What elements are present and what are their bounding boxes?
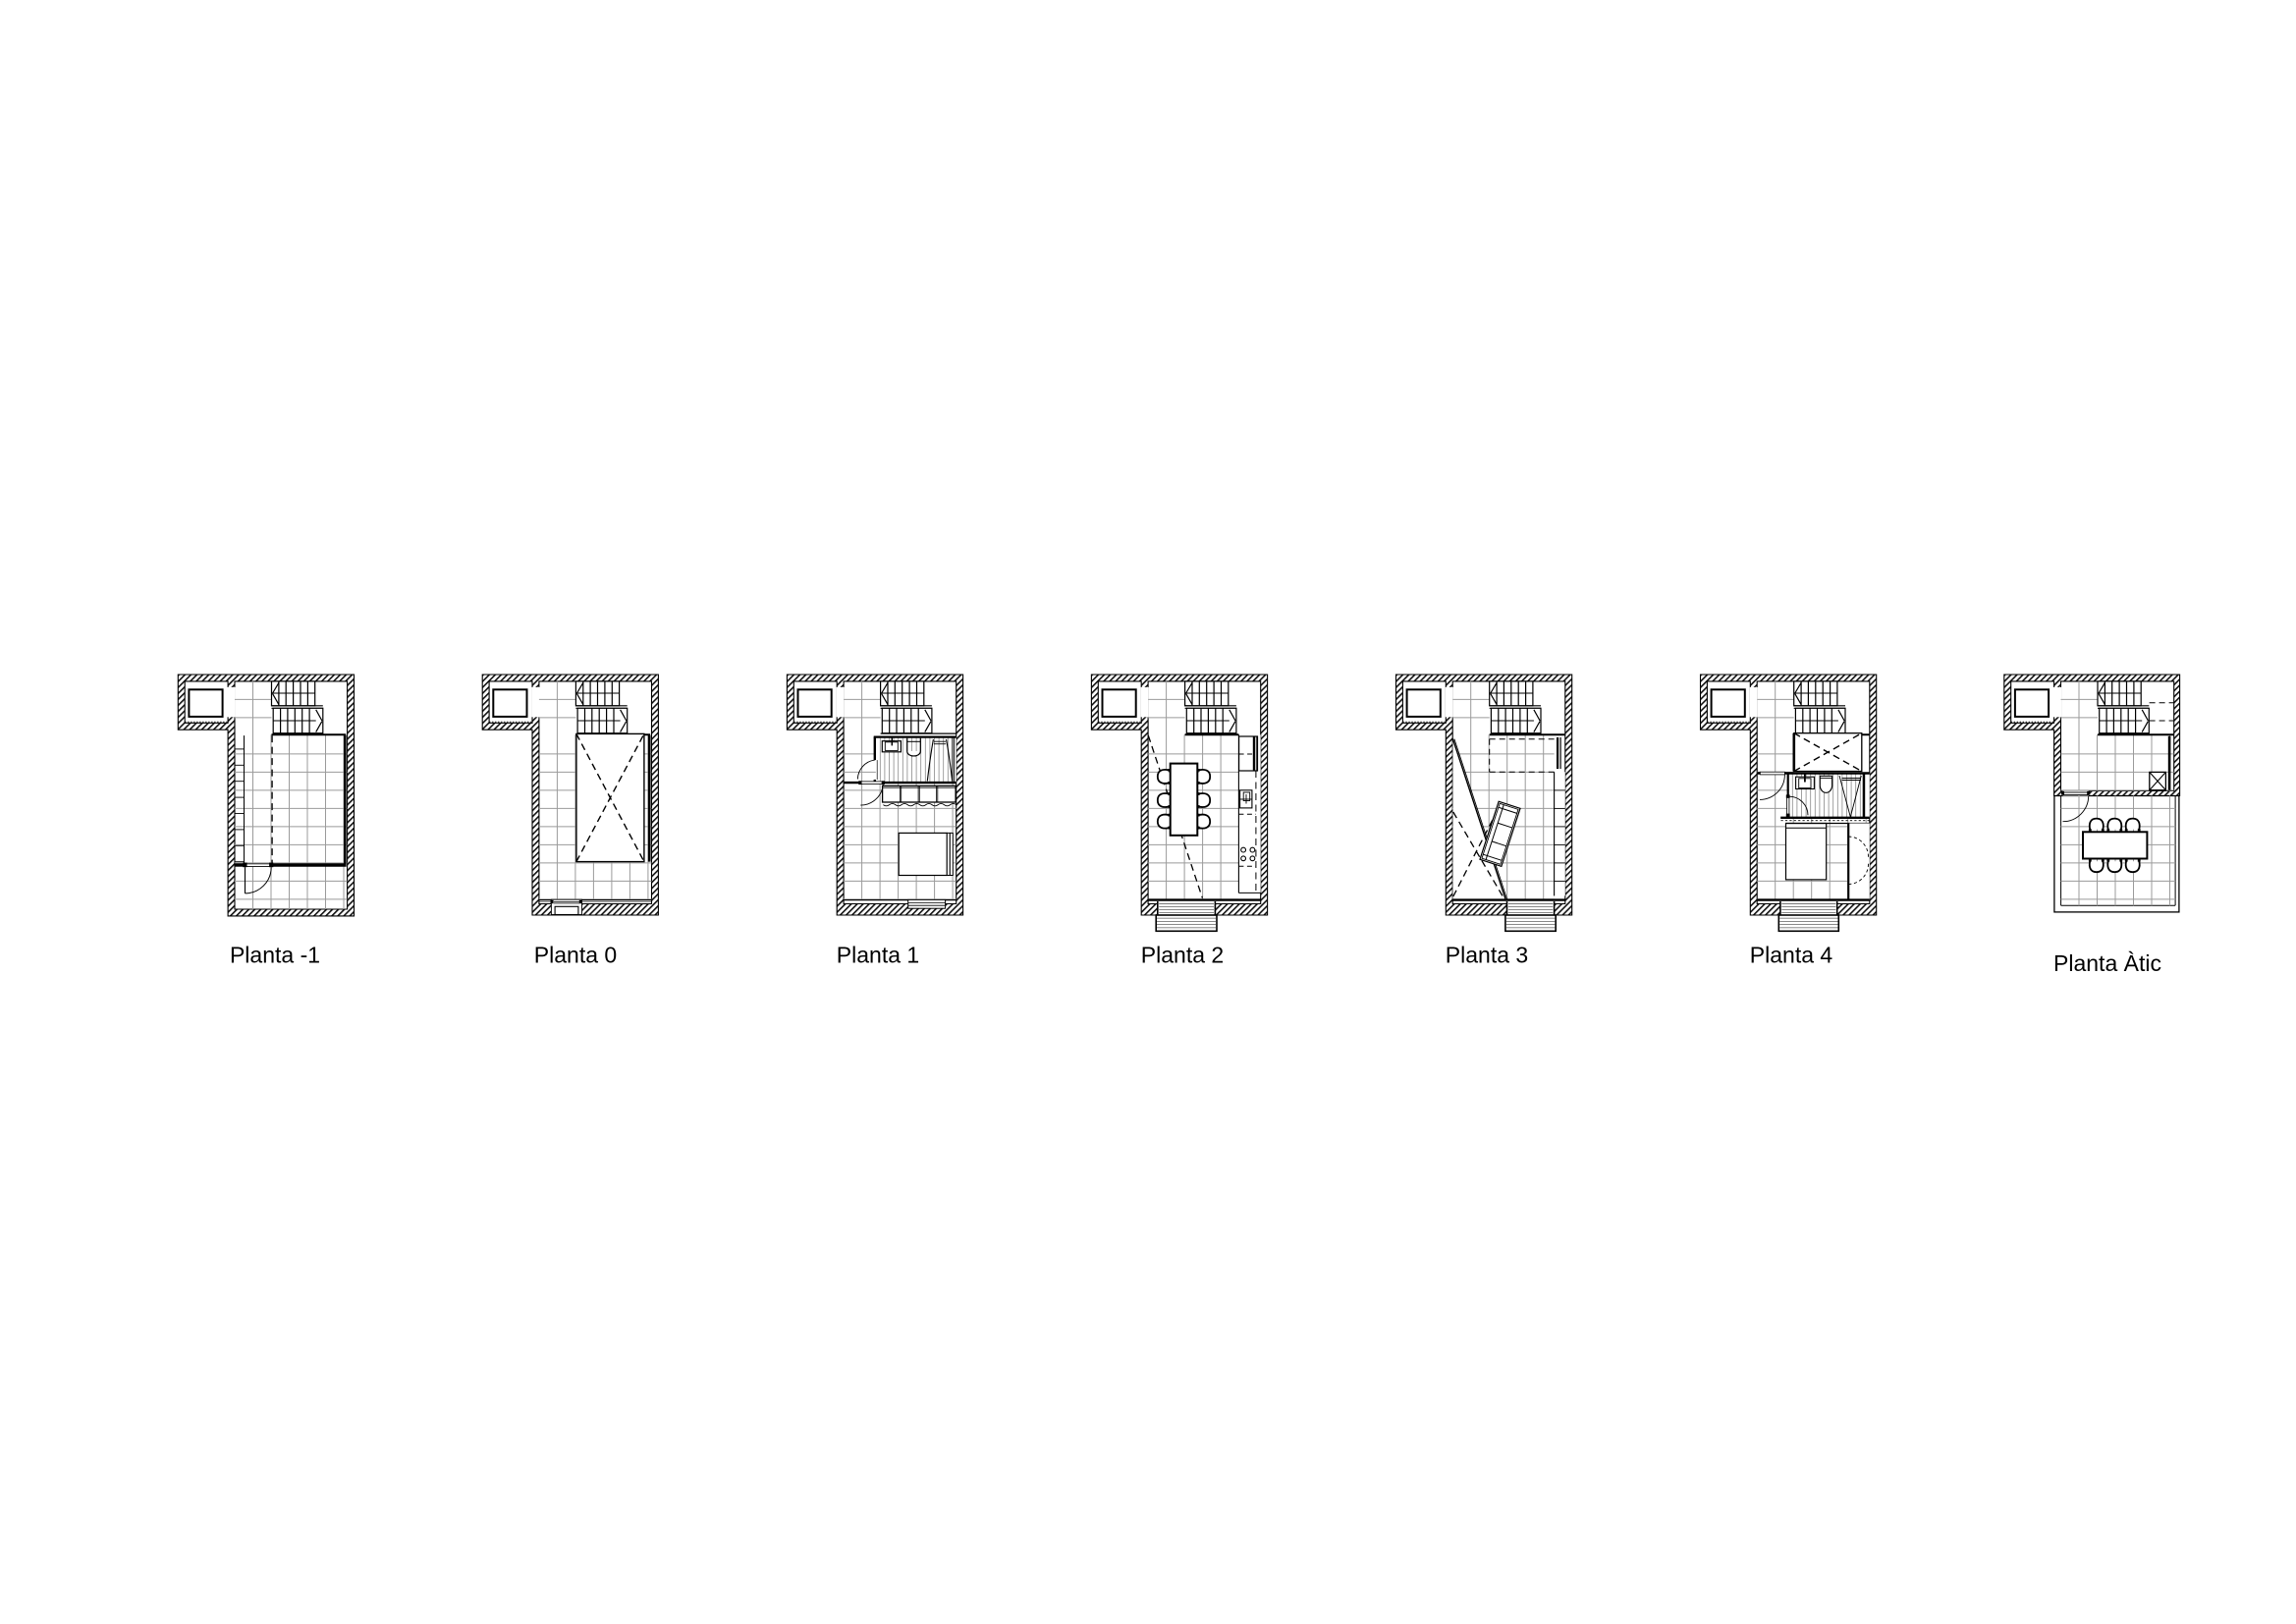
svg-text:Planta 3: Planta 3 <box>1446 943 1528 968</box>
svg-text:Planta 0: Planta 0 <box>534 943 617 968</box>
svg-text:Planta 1: Planta 1 <box>837 943 919 968</box>
svg-text:Planta -1: Planta -1 <box>230 943 320 968</box>
svg-text:Planta 4: Planta 4 <box>1750 943 1833 968</box>
svg-text:Planta Àtic: Planta Àtic <box>2053 950 2161 976</box>
svg-text:Planta 2: Planta 2 <box>1141 943 1224 968</box>
